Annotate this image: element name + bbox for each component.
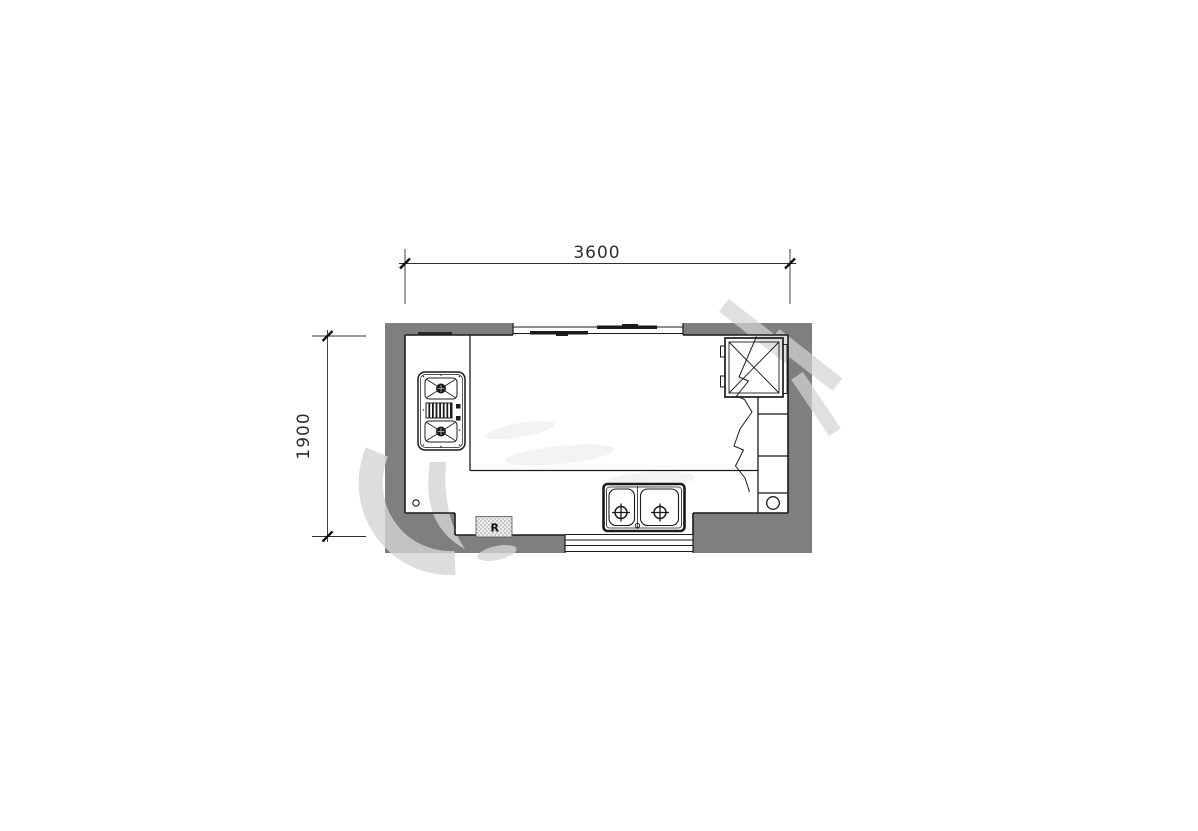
burner-bottom: [425, 421, 457, 442]
hatched-box-label: R: [491, 522, 500, 535]
dimension-left: 1900: [294, 330, 366, 542]
sink-drain-left: [612, 504, 630, 522]
floor-plan-canvas: R 3600 1900: [0, 0, 1198, 831]
cooktop-knob-1: [456, 404, 461, 409]
sink-drain-right: [651, 504, 669, 522]
break-line: [734, 337, 757, 493]
gas-cooktop: [418, 372, 465, 450]
cooktop-knob-2: [456, 416, 461, 421]
dimension-top: 3600: [399, 243, 796, 304]
window-bottom: [565, 535, 693, 552]
watermark-floor-streaks: [484, 417, 695, 491]
wall-inner-dash: [418, 332, 452, 335]
round-fixture: [767, 497, 780, 510]
floor-plan-page: R 3600 1900: [0, 0, 1198, 831]
sliding-window-top: [513, 324, 683, 336]
cooktop-grill: [426, 403, 452, 418]
wall-bottom-right: [693, 513, 812, 553]
dimension-top-label: 3600: [573, 243, 620, 263]
double-sink: [604, 484, 685, 531]
dimension-left-label: 1900: [294, 412, 314, 459]
hatched-appliance-box: R: [476, 517, 512, 538]
burner-top: [425, 378, 457, 399]
tall-cabinet: [734, 337, 788, 514]
floor-drain-circle: [413, 500, 419, 506]
watermark-stripes-top-right: [719, 299, 842, 436]
